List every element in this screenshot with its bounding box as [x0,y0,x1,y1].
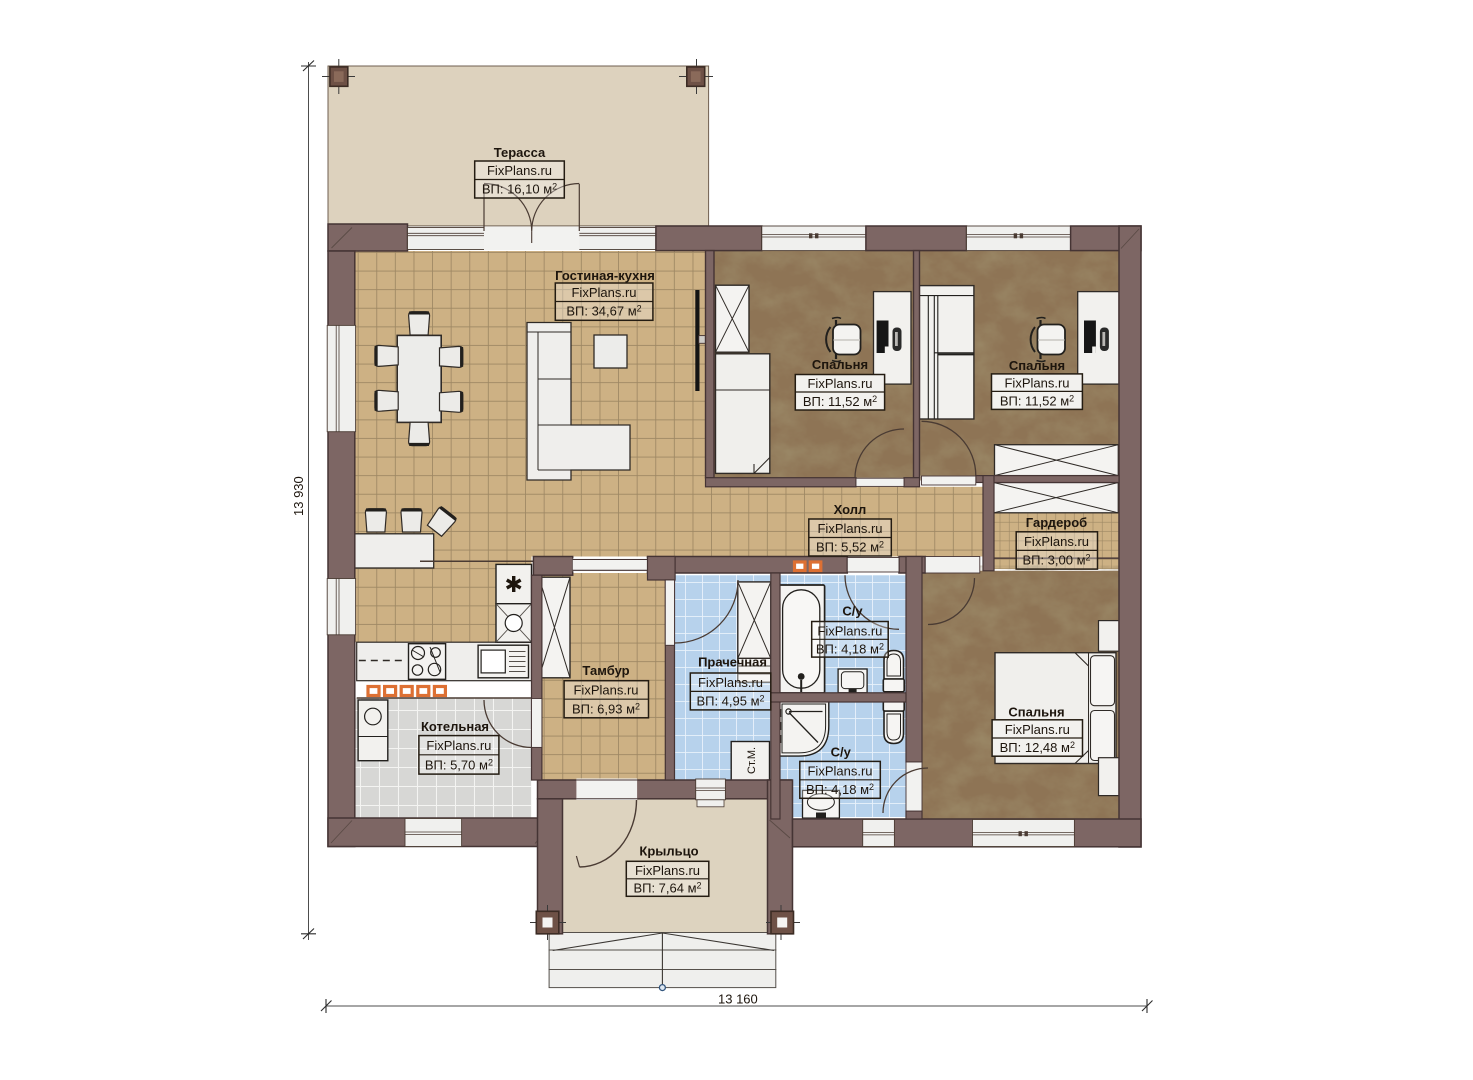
svg-text:13 930: 13 930 [291,476,306,516]
svg-text:FixPlans.ru: FixPlans.ru [698,675,763,690]
svg-text:ВП: 4,95 м2: ВП: 4,95 м2 [696,694,764,709]
svg-text:ВП: 4,18 м2: ВП: 4,18 м2 [806,782,874,797]
svg-text:FixPlans.ru: FixPlans.ru [1005,722,1070,737]
svg-text:FixPlans.ru: FixPlans.ru [426,738,491,753]
svg-text:ВП: 5,52 м2: ВП: 5,52 м2 [816,540,884,555]
svg-text:Крыльцо: Крыльцо [639,844,698,859]
svg-text:ВП: 12,48 м2: ВП: 12,48 м2 [1000,740,1075,755]
svg-text:С/у: С/у [842,604,863,619]
svg-text:FixPlans.ru: FixPlans.ru [807,763,872,778]
svg-text:Холл: Холл [834,502,867,517]
svg-text:ВП: 16,10 м2: ВП: 16,10 м2 [482,182,557,197]
svg-text:ВП: 3,00 м2: ВП: 3,00 м2 [1022,553,1090,568]
svg-text:Прачечная: Прачечная [698,655,767,670]
svg-text:FixPlans.ru: FixPlans.ru [487,163,552,178]
svg-text:Спальня: Спальня [812,357,868,372]
svg-text:FixPlans.ru: FixPlans.ru [807,376,872,391]
svg-text:ВП: 11,52 м2: ВП: 11,52 м2 [803,394,877,409]
svg-text:ВП: 11,52 м2: ВП: 11,52 м2 [1000,393,1074,408]
svg-text:Спальня: Спальня [1008,705,1064,720]
svg-text:ВП: 34,67 м2: ВП: 34,67 м2 [566,304,641,319]
svg-text:Ст.М.: Ст.М. [746,747,758,774]
svg-text:Котельная: Котельная [421,719,489,734]
svg-text:ВП: 6,93 м2: ВП: 6,93 м2 [572,701,640,716]
svg-text:ВП: 7,64 м2: ВП: 7,64 м2 [633,881,701,896]
svg-text:Терасса: Терасса [494,145,546,160]
svg-text:Гостиная-кухня: Гостиная-кухня [555,268,655,283]
svg-text:FixPlans.ru: FixPlans.ru [571,285,636,300]
svg-text:FixPlans.ru: FixPlans.ru [1004,375,1069,390]
svg-text:FixPlans.ru: FixPlans.ru [573,683,638,698]
svg-text:Тамбур: Тамбур [582,663,629,678]
svg-text:Гардероб: Гардероб [1026,515,1087,530]
svg-text:FixPlans.ru: FixPlans.ru [1024,534,1089,549]
svg-text:FixPlans.ru: FixPlans.ru [817,623,882,638]
svg-text:ВП: 4,18 м2: ВП: 4,18 м2 [816,641,884,656]
svg-text:FixPlans.ru: FixPlans.ru [635,863,700,878]
svg-text:ВП: 5,70 м2: ВП: 5,70 м2 [425,757,493,772]
svg-text:Спальня: Спальня [1009,358,1065,373]
svg-text:FixPlans.ru: FixPlans.ru [817,521,882,536]
svg-text:С/у: С/у [831,745,852,760]
svg-text:✱: ✱ [504,572,522,597]
svg-text:13 160: 13 160 [718,992,758,1007]
